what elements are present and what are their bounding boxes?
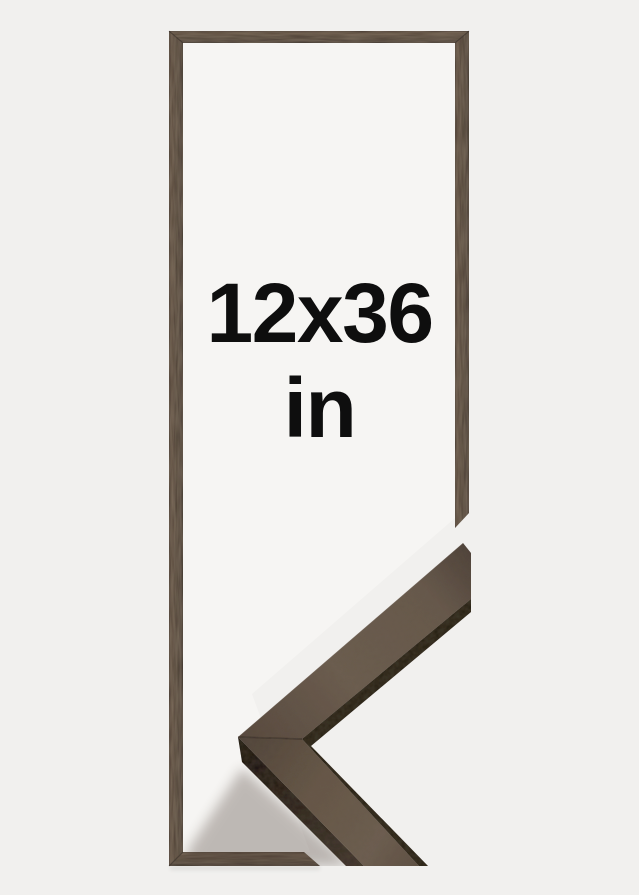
frame-illustration [0, 0, 639, 895]
product-image[interactable]: 12x36 in [0, 0, 639, 895]
frame-top-rail [169, 31, 469, 43]
frame-left-rail [169, 31, 183, 866]
frame-right-rail [455, 31, 469, 528]
bottom-rail-shadow [170, 866, 320, 870]
